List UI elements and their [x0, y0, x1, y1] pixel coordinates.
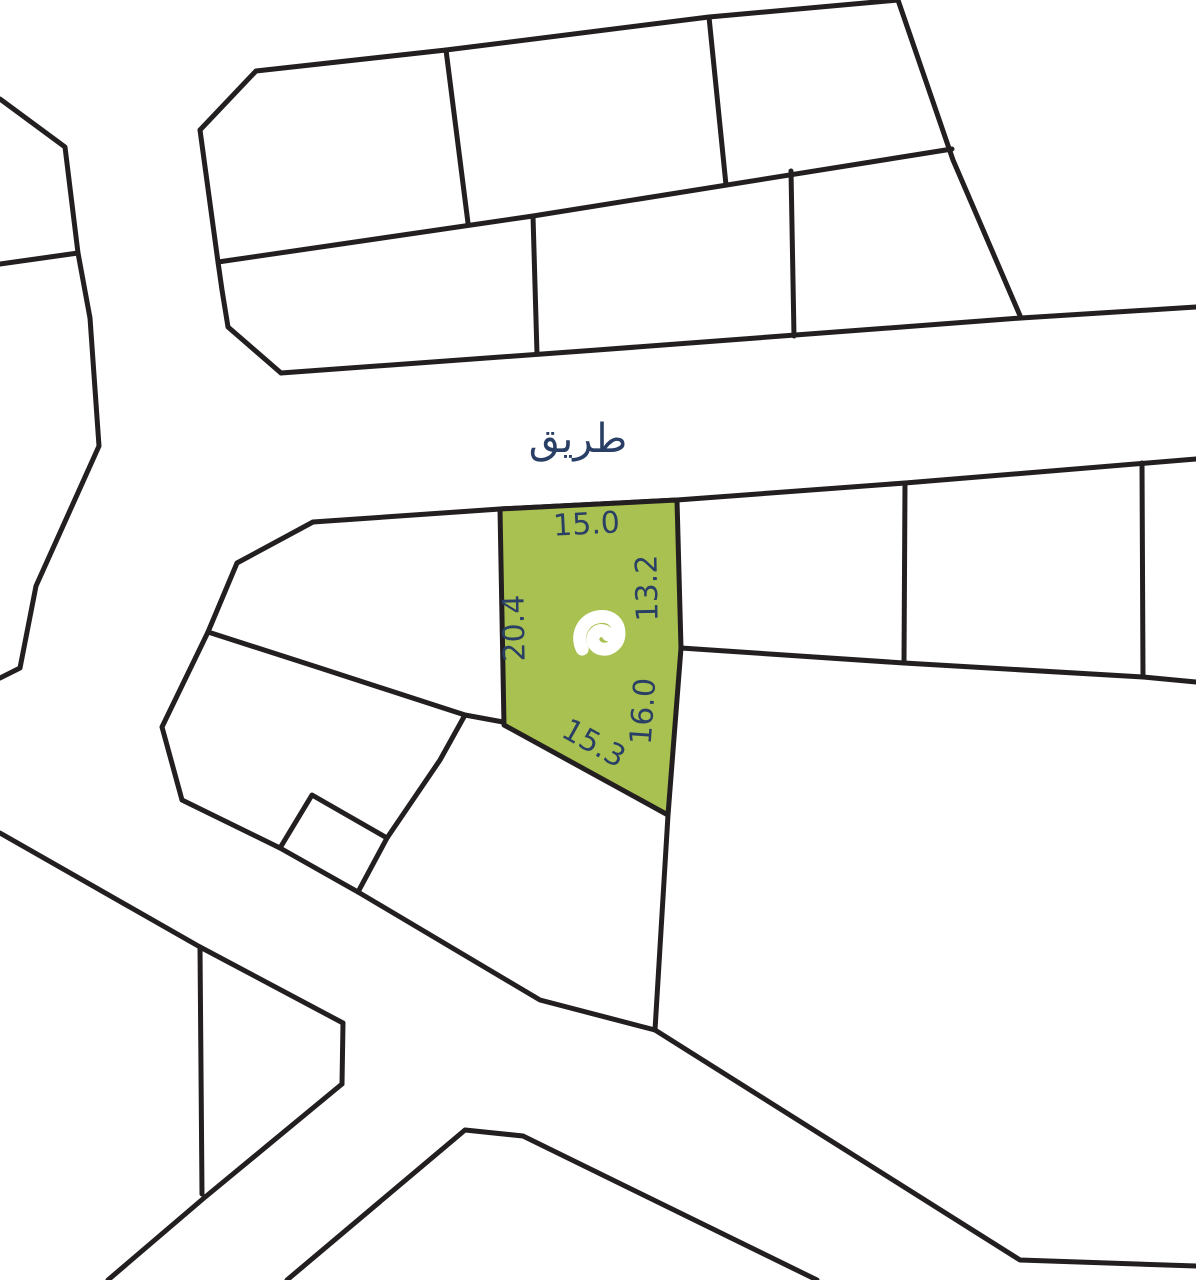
parcel-divider-vertical-2 [709, 17, 726, 185]
road-edge-top-right [1021, 307, 1196, 318]
parcel-boundary-left-block [0, 99, 99, 678]
parcel-divider-vertical-3 [533, 216, 537, 354]
parcel-notch [280, 795, 387, 848]
parcel-divider-lowerleft-branch [358, 715, 465, 892]
parcel-divider-below-plot [655, 815, 668, 1030]
parcel-divider-vertical-4 [791, 171, 794, 336]
diagonal-road-edge-bottom [0, 833, 200, 947]
parcel-row-divider-2 [1142, 463, 1143, 677]
parcel-row-bottom-line [681, 648, 1196, 682]
parcel-divider-vertical-1 [446, 50, 468, 223]
parcel-divider-left [0, 253, 78, 264]
parcel-boundary-top-block-rightedge [898, 0, 1021, 318]
bottom-road-edge-se [287, 1130, 817, 1280]
parcel-boundary-top-block-topedge [200, 0, 898, 130]
road-edge-bottomright [655, 1030, 1196, 1266]
dimension-label-right-lower: 16.0 [624, 677, 664, 746]
cadastral-map: 15.0 13.2 20.4 16.0 15.3 طريق [0, 0, 1196, 1280]
parcel-row-divider-1 [904, 483, 905, 663]
parcel-divider-lowerleft [208, 632, 503, 722]
bottom-road-edge-nw [108, 1084, 342, 1280]
logo-mark-icon [575, 613, 622, 655]
parcel-map-canvas: 15.0 13.2 20.4 16.0 15.3 طريق [0, 0, 1196, 1280]
diagonal-road-edge-top [182, 800, 655, 1030]
parcel-divider-horizontal [218, 149, 952, 262]
triangle-parcel-leftedge [200, 947, 202, 1194]
triangle-parcel-bevel [342, 1023, 343, 1084]
dimension-label-right-upper: 13.2 [629, 554, 665, 621]
dimension-label-left: 20.4 [496, 594, 532, 661]
road-name-label: طريق [529, 416, 627, 462]
parcel-boundary-top-block-leftedge [200, 130, 281, 373]
dimension-label-top: 15.0 [552, 505, 621, 543]
triangle-parcel-topedge [200, 947, 343, 1023]
road-edge-bottom [313, 459, 1196, 522]
road-edge-top [281, 318, 1021, 373]
